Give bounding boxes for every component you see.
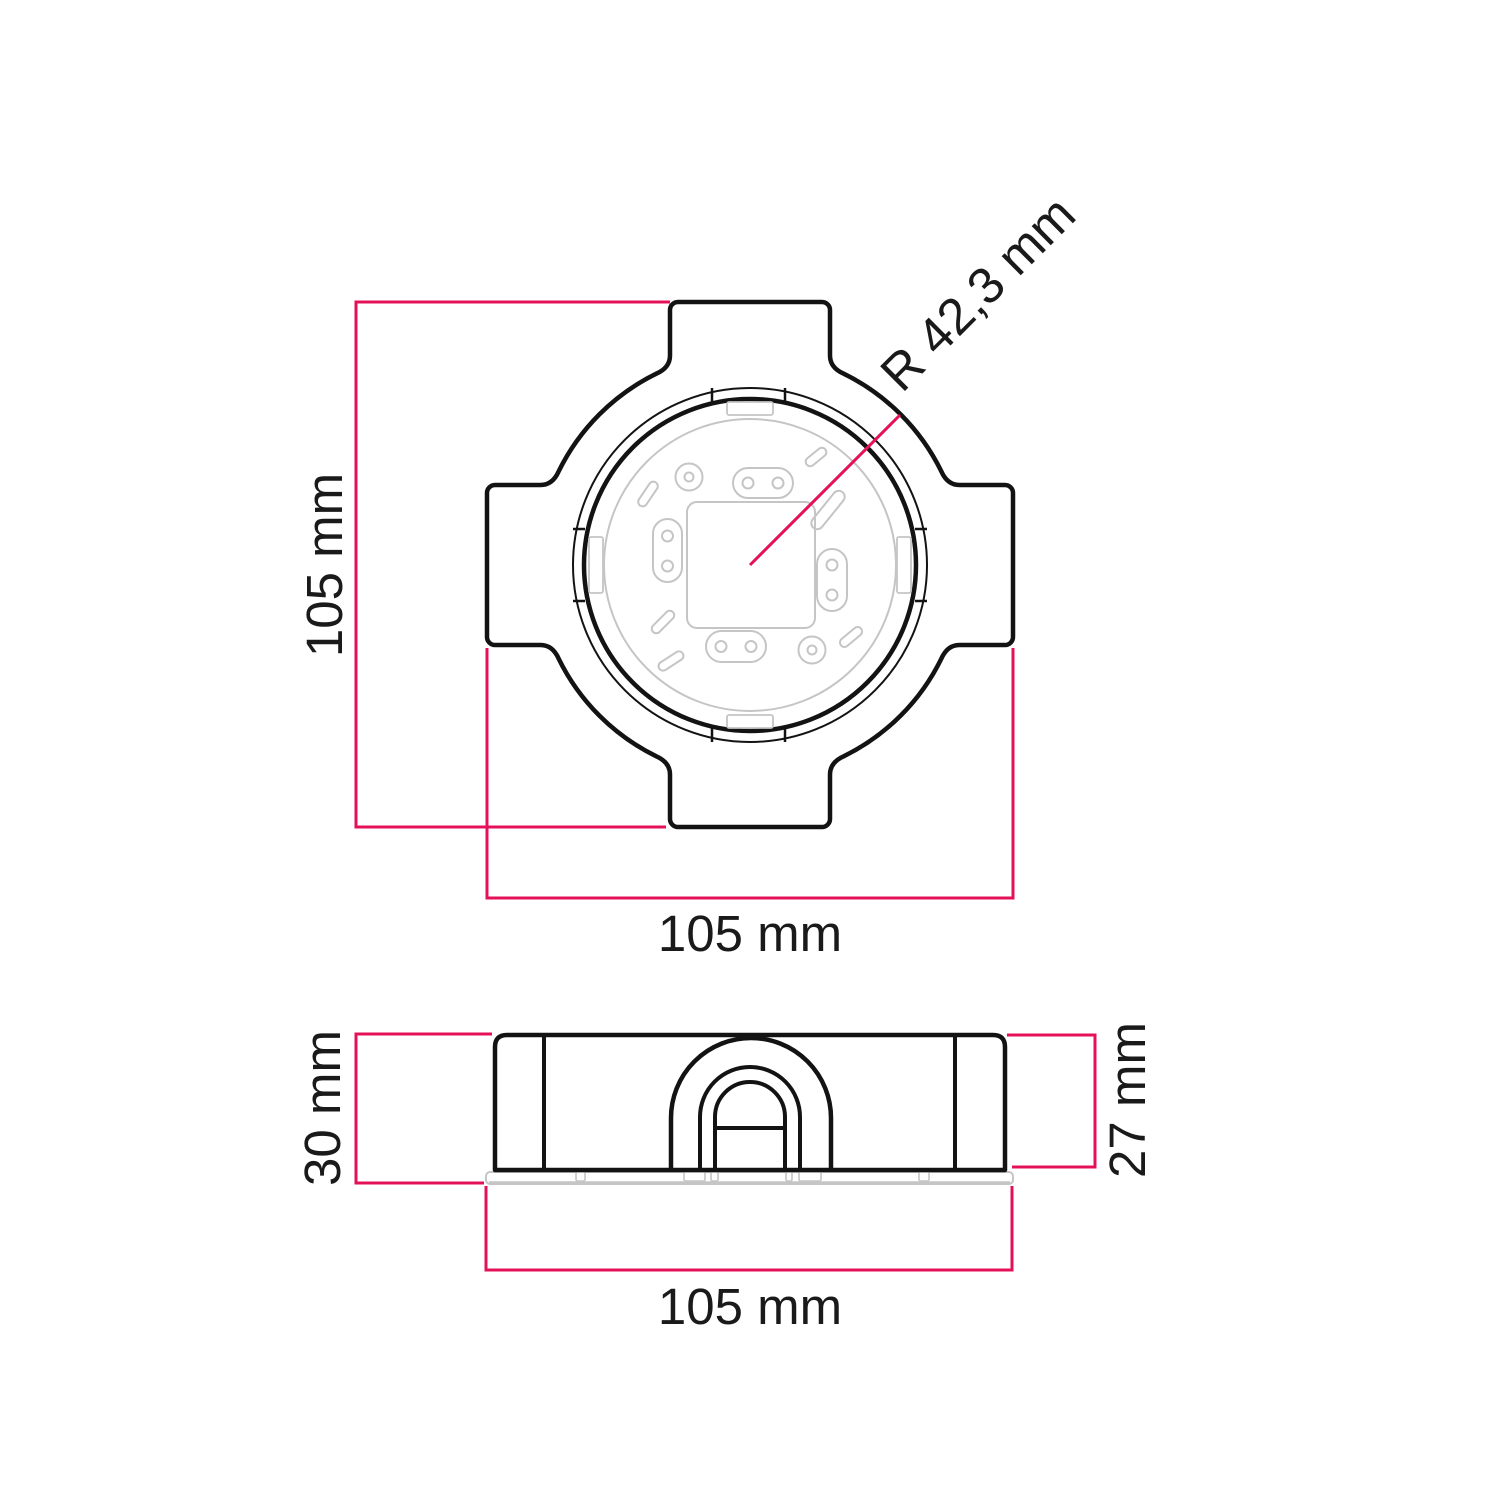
plate-clip	[576, 1172, 585, 1181]
side-body-height-label: 27 mm	[1099, 1022, 1156, 1178]
plate-clip	[684, 1172, 705, 1181]
side-total-height-label: 30 mm	[294, 1030, 351, 1186]
technical-drawing-canvas: 105 mm 105 mm R 42,3 mm	[0, 0, 1500, 1500]
top-view-height-label: 105 mm	[296, 473, 353, 657]
plate-clip	[711, 1172, 718, 1181]
side-body-outline	[495, 1035, 1005, 1170]
plate-clip	[786, 1172, 792, 1181]
side-view: 30 mm 27 mm 105 mm	[294, 1022, 1156, 1335]
plate-clip	[919, 1172, 929, 1181]
dimension-line-total-height	[356, 1034, 492, 1183]
top-view: 105 mm 105 mm R 42,3 mm	[296, 185, 1086, 962]
dimension-line-body-height	[1007, 1035, 1095, 1167]
dimension-line-side-width	[486, 1186, 1012, 1270]
radius-label: R 42,3 mm	[869, 185, 1086, 402]
top-view-width-label: 105 mm	[658, 905, 842, 962]
dimension-drawing: 105 mm 105 mm R 42,3 mm	[0, 0, 1500, 1500]
plate-clip	[799, 1172, 821, 1181]
side-base-plate	[486, 1172, 1013, 1184]
side-width-label: 105 mm	[658, 1278, 842, 1335]
